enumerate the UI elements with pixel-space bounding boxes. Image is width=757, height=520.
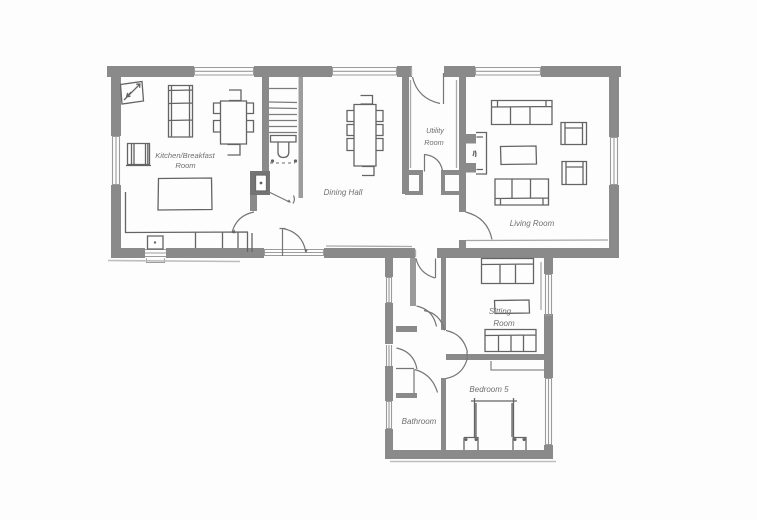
svg-text:Living Room: Living Room [510, 219, 555, 228]
svg-text:Room: Room [493, 319, 515, 328]
svg-text:Room: Room [424, 138, 443, 147]
svg-text:Dining Hall: Dining Hall [324, 188, 363, 197]
svg-text:Kitchen/Breakfast: Kitchen/Breakfast [155, 151, 215, 160]
svg-text:Bathroom: Bathroom [402, 417, 437, 426]
svg-text:Utility: Utility [426, 126, 445, 135]
svg-text:Room: Room [175, 161, 195, 170]
svg-text:Bedroom 5: Bedroom 5 [469, 385, 509, 394]
svg-text:Sitting: Sitting [489, 307, 512, 316]
